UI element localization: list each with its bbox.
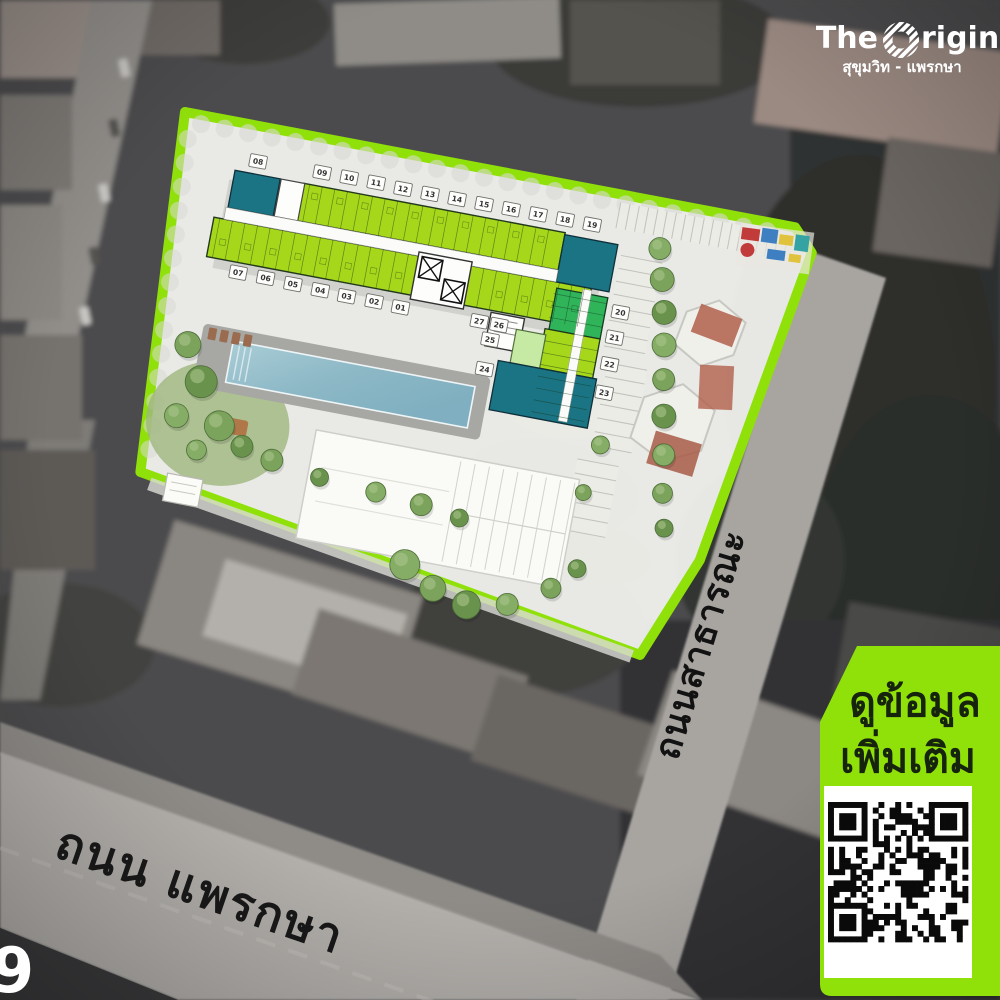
unit-chip: 27 <box>470 313 489 329</box>
svg-text:01: 01 <box>394 302 406 313</box>
svg-text:14: 14 <box>451 194 463 205</box>
svg-text:25: 25 <box>484 334 496 345</box>
svg-text:22: 22 <box>604 359 616 370</box>
unit-chip: 19 <box>583 217 602 233</box>
svg-text:20: 20 <box>614 307 626 318</box>
svg-text:15: 15 <box>478 199 490 210</box>
site-plan-flyer: 0809101112131415161718190706050403020127… <box>0 0 1000 1000</box>
brand-subtitle: สุขุมวิท - แพรกษา <box>842 58 961 77</box>
svg-text:09: 09 <box>316 167 328 178</box>
svg-text:07: 07 <box>232 268 244 279</box>
unit-chip: 26 <box>489 317 508 333</box>
svg-text:06: 06 <box>260 273 272 284</box>
unit-chip: 25 <box>480 332 499 348</box>
unit-chip: 13 <box>420 186 439 202</box>
unit-block-teal-right <box>556 235 618 292</box>
unit-chip: 15 <box>475 196 494 212</box>
unit-chip: 02 <box>365 293 384 309</box>
unit-chip: 11 <box>367 175 386 191</box>
elevator-core <box>410 252 472 309</box>
svg-text:18: 18 <box>559 214 571 225</box>
svg-text:12: 12 <box>397 184 409 195</box>
unit-chip: 22 <box>600 356 619 372</box>
unit-chip: 10 <box>340 170 359 186</box>
unit-chip: 03 <box>337 288 356 304</box>
svg-text:13: 13 <box>424 189 436 200</box>
svg-text:08: 08 <box>252 156 264 167</box>
unit-chip: 20 <box>611 304 630 320</box>
unit-chip: 06 <box>256 270 275 286</box>
unit-chip: 12 <box>393 181 412 197</box>
unit-chip: 14 <box>448 191 467 207</box>
svg-text:21: 21 <box>609 333 621 344</box>
svg-text:04: 04 <box>314 285 326 296</box>
unit-chip: 21 <box>605 330 624 346</box>
unit-chip: 17 <box>529 206 548 222</box>
unit-chip: 08 <box>249 153 268 169</box>
unit-chip: 23 <box>595 385 614 401</box>
brand-prefix: The <box>816 21 878 56</box>
unit-chip: 05 <box>283 276 302 292</box>
svg-text:19: 19 <box>586 219 598 230</box>
info-box-line1: ดูข้อมูล <box>849 678 980 728</box>
svg-text:27: 27 <box>473 316 485 327</box>
unit-chip: 04 <box>311 282 330 298</box>
unit-chip: 01 <box>391 299 410 315</box>
svg-text:26: 26 <box>493 320 505 331</box>
svg-text:23: 23 <box>598 388 610 399</box>
svg-text:24: 24 <box>478 364 490 375</box>
svg-text:03: 03 <box>341 291 353 302</box>
brand-suffix: rigin <box>921 21 999 56</box>
unit-chip: 07 <box>229 265 248 281</box>
unit-chip: 24 <box>475 361 494 377</box>
unit-chip: 09 <box>313 165 332 181</box>
svg-text:05: 05 <box>287 279 299 290</box>
corner-digit: 9 <box>0 934 34 1000</box>
info-box: ดูข้อมูล เพิ่มเติม <box>820 646 1000 996</box>
info-box-line2: เพิ่มเติม <box>840 729 976 782</box>
svg-text:02: 02 <box>368 296 380 307</box>
svg-text:16: 16 <box>505 204 517 215</box>
svg-text:10: 10 <box>343 173 355 184</box>
entrance-structure <box>162 473 203 507</box>
svg-text:17: 17 <box>532 209 544 220</box>
unit-chip: 18 <box>556 211 575 227</box>
svg-text:11: 11 <box>370 178 382 189</box>
unit-chip: 16 <box>502 201 521 217</box>
